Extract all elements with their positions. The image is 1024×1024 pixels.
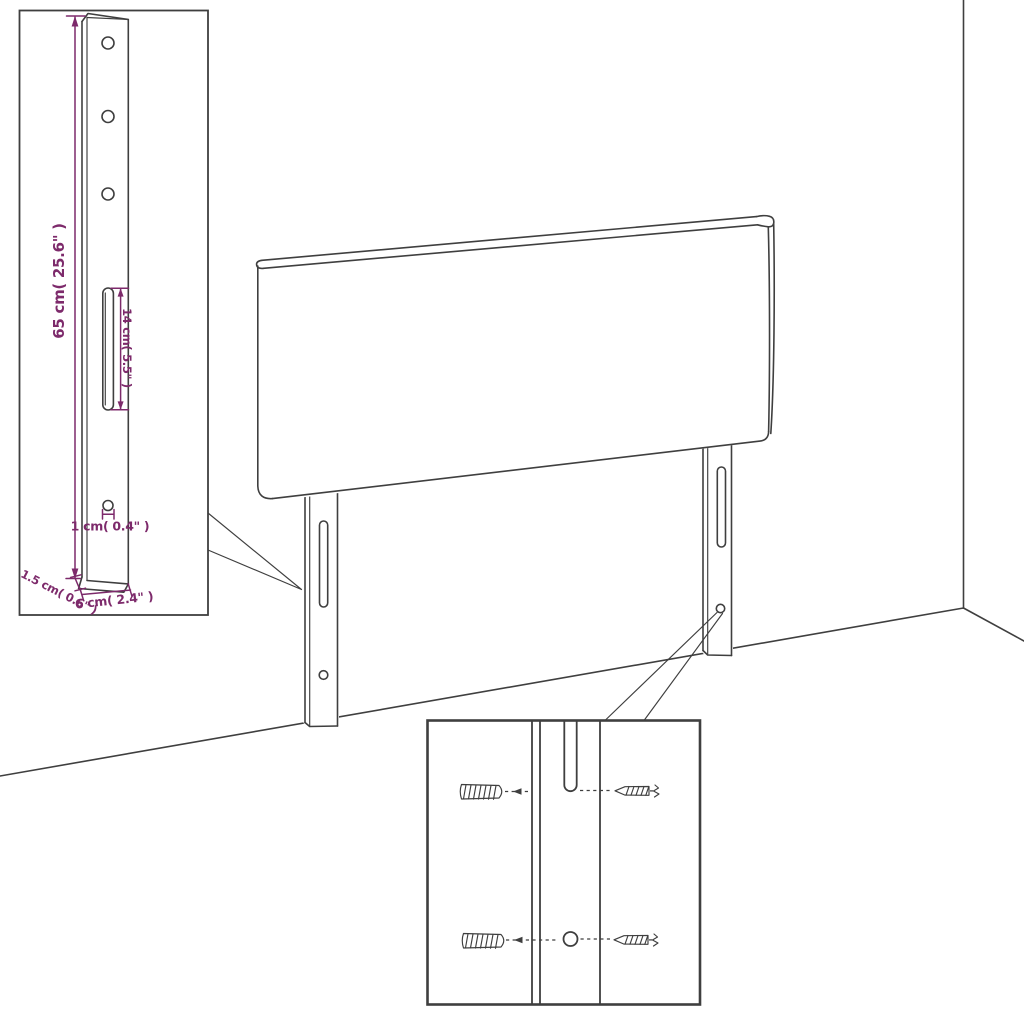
dimension-label-hole-diameter: 1 cm( 0.4" ): [71, 519, 150, 534]
diagram-line-art: [0, 0, 1024, 1024]
floor-line-right: [964, 608, 1024, 641]
detail-inset-mounting: [428, 721, 701, 1005]
mounting-leg-left: [304, 483, 340, 729]
dimension-label-slot-length: 14 cm( 5.5" ): [120, 308, 134, 388]
callout-lines-left: [208, 513, 302, 590]
headboard-panel: [255, 213, 776, 501]
assembly-diagram: 65 cm( 25.6" ) 14 cm( 5.5" ) 1 cm( 0.4" …: [0, 0, 1024, 1024]
dimension-label-bracket-height: 65 cm( 25.6" ): [50, 223, 68, 338]
